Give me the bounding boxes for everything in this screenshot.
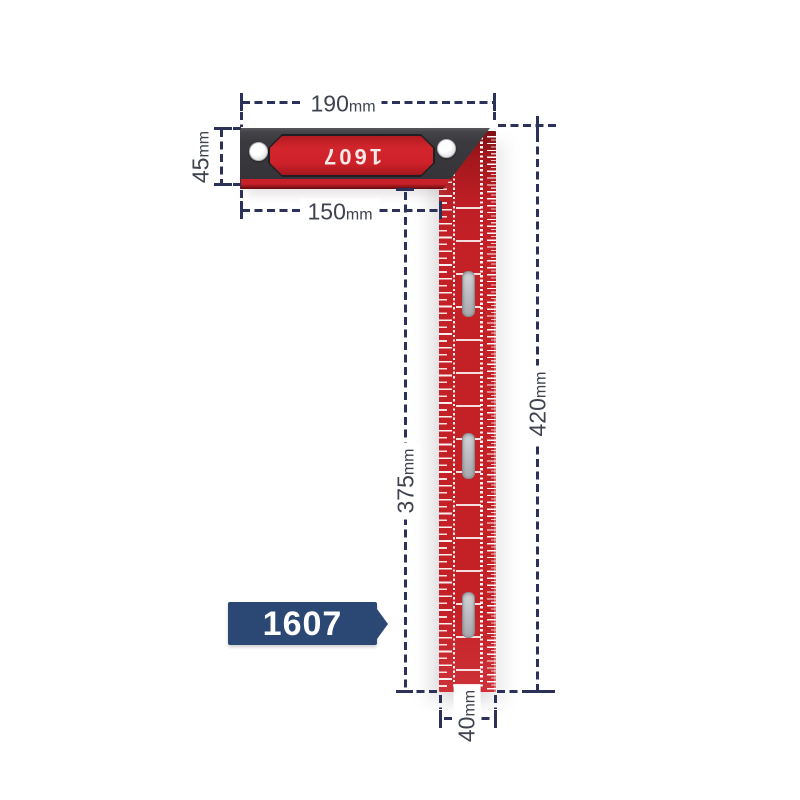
badge-arrow-icon — [377, 609, 388, 639]
dim-extension — [233, 127, 241, 130]
dim-cap — [527, 690, 549, 693]
dimension-label-40mm: 40mm — [454, 684, 481, 748]
dimension-label-150mm: 150mm — [301, 199, 378, 226]
dim-cap — [536, 116, 539, 134]
dim-line — [404, 192, 407, 690]
dim-extension — [240, 112, 243, 127]
dim-cap — [439, 710, 442, 728]
dim-cap — [214, 127, 232, 130]
dim-extension — [493, 112, 496, 123]
dim-extension — [240, 190, 243, 201]
dim-cap — [493, 93, 496, 111]
dim-cap — [494, 710, 497, 728]
dimension-label-420mm: 420mm — [525, 365, 552, 442]
dim-cap — [396, 188, 414, 191]
dim-cap — [439, 201, 442, 219]
dimension-label-375mm: 375mm — [393, 442, 420, 519]
dimension-label-45mm: 45mm — [188, 125, 215, 189]
dim-extension — [498, 124, 556, 127]
dim-cap — [396, 690, 413, 693]
dim-line — [220, 129, 223, 185]
dim-extension — [439, 695, 442, 709]
dim-cap — [240, 201, 243, 219]
dim-cap — [214, 183, 232, 186]
dimension-annotations: 190mm 45mm 150mm — [0, 0, 800, 800]
product-dimension-diagram: 1607 190mm 45mm — [0, 0, 800, 800]
dim-extension — [233, 183, 241, 186]
dimension-label-190mm: 190mm — [304, 91, 381, 118]
dim-extension — [494, 695, 497, 709]
dim-cap — [240, 93, 243, 111]
badge-label: 1607 — [263, 607, 343, 641]
model-badge: 1607 — [228, 602, 377, 645]
